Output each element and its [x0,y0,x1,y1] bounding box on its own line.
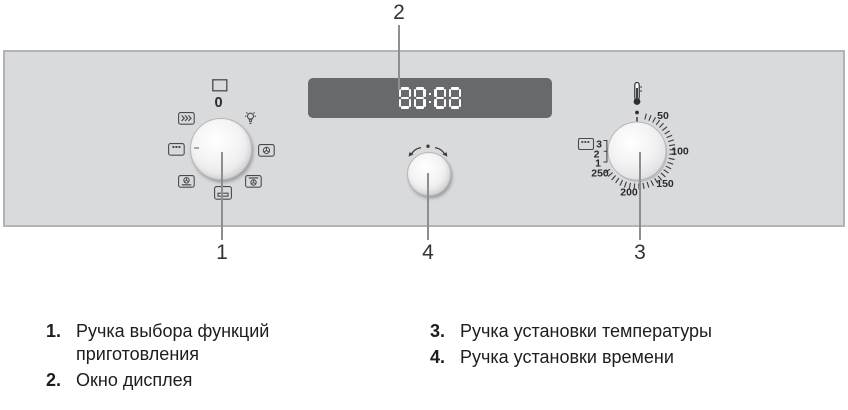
legend-text-1: Ручка выбора функций приготовления [76,320,308,366]
legend-num-4: 4. [430,346,460,369]
legend-column-right: 3. Ручка установки температуры 4. Ручка … [430,320,712,372]
callout-label-display: 2 [388,1,410,25]
legend-num-1: 1. [46,320,76,366]
temp-off-dot [635,111,639,115]
legend-num-2: 2. [46,369,76,392]
legend-text-3: Ручка установки температуры [460,320,712,343]
grill-level-1: 1 [595,158,601,170]
temperature-knob[interactable] [608,122,666,180]
callout-label-time-knob: 4 [417,241,439,265]
oven-control-panel [3,50,845,227]
grill-icon [168,143,185,156]
fan-icon [258,144,275,157]
legend-text-4: Ручка установки времени [460,346,674,369]
display-value [398,87,463,109]
callout-label-temperature-knob: 3 [629,241,651,265]
fan-upper-heat-icon [245,175,262,188]
callout-line-3 [639,152,641,240]
temp-label-50: 50 [657,110,669,122]
callout-label-function-knob: 1 [211,241,233,265]
lamp-icon [244,111,257,125]
legend-item-1: 1. Ручка выбора функций приготовления [46,320,308,366]
temp-label-150: 150 [656,178,674,190]
function-knob-marker [194,147,199,149]
off-square-icon [212,79,228,92]
display-window [308,78,552,118]
thermometer-icon [634,83,642,105]
defrost-icon [178,112,195,125]
legend-item-4: 4. Ручка установки времени [430,346,712,369]
temp-label-100: 100 [671,146,689,158]
time-knob[interactable] [407,152,451,196]
callout-line-1 [221,152,223,240]
legend-item-3: 3. Ручка установки температуры [430,320,712,343]
temperature-dial: 50 100 150 200 250 3 2 1 [572,76,704,206]
grill-levels-bracket [604,141,607,163]
temp-label-200: 200 [620,187,638,199]
grill-icon-temp-dial [579,139,594,150]
legend-item-2: 2. Окно дисплея [46,369,308,392]
function-knob-zero-label: 0 [208,95,229,111]
function-knob-group: 0 [158,70,282,205]
callout-line-4 [427,173,429,240]
fan-lower-heat-icon [178,175,195,188]
lower-heat-icon [214,186,232,200]
callout-line-2 [398,25,400,90]
legend-text-2: Окно дисплея [76,369,192,392]
legend-column-left: 1. Ручка выбора функций приготовления 2.… [46,320,308,395]
legend-num-3: 3. [430,320,460,343]
